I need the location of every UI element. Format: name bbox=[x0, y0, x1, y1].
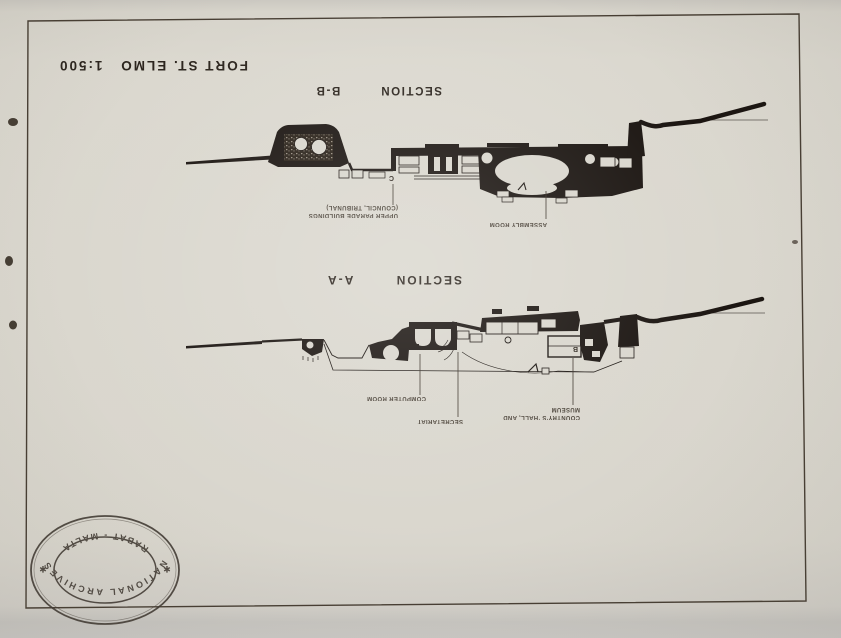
drawing-title-name: FORT ST. ELMO bbox=[119, 58, 248, 73]
section-aa-title: SECTION A-A bbox=[326, 273, 462, 287]
label-computer-room: COMPUTER ROOM bbox=[366, 394, 426, 402]
label-upper-parade-buildings: UPPER PARADE BUILDINGS (COUNCIL, TRIBUNA… bbox=[296, 203, 398, 219]
sheet-border bbox=[26, 14, 806, 608]
stamp-top-text: NATIONAL ARCHIVES bbox=[41, 559, 170, 598]
label-secretariat: SECRETARIAT bbox=[411, 417, 463, 425]
marker-letter-c: C bbox=[384, 174, 394, 181]
label-museum: COUNTRY'S 'HALL, AND MUSEUM bbox=[496, 405, 580, 421]
section-bb-drawing bbox=[186, 104, 768, 219]
drawing-scale: 1:500 bbox=[58, 58, 103, 73]
label-assembly-room: ASSEMBLY ROOM bbox=[472, 220, 547, 228]
scanned-archive-drawing: NATIONAL ARCHIVES RABAT - MALTA ✱ ✱ FORT… bbox=[0, 0, 841, 638]
stamp-star-right-icon: ✱ bbox=[39, 564, 47, 574]
section-aa-drawing bbox=[186, 299, 765, 417]
section-aa-id: A-A bbox=[326, 273, 353, 287]
section-bb-id: B-B bbox=[315, 84, 340, 96]
section-bb-title: SECTION B-B bbox=[315, 84, 442, 96]
stamp-star-left-icon: ✱ bbox=[163, 564, 171, 574]
marker-letter-b: B bbox=[568, 345, 578, 352]
section-aa-word: SECTION bbox=[395, 273, 462, 287]
stamp-bottom-text: RABAT - MALTA bbox=[60, 531, 150, 555]
drawing-title: FORT ST. ELMO 1:500 bbox=[58, 58, 248, 73]
section-bb-word: SECTION bbox=[380, 84, 442, 96]
